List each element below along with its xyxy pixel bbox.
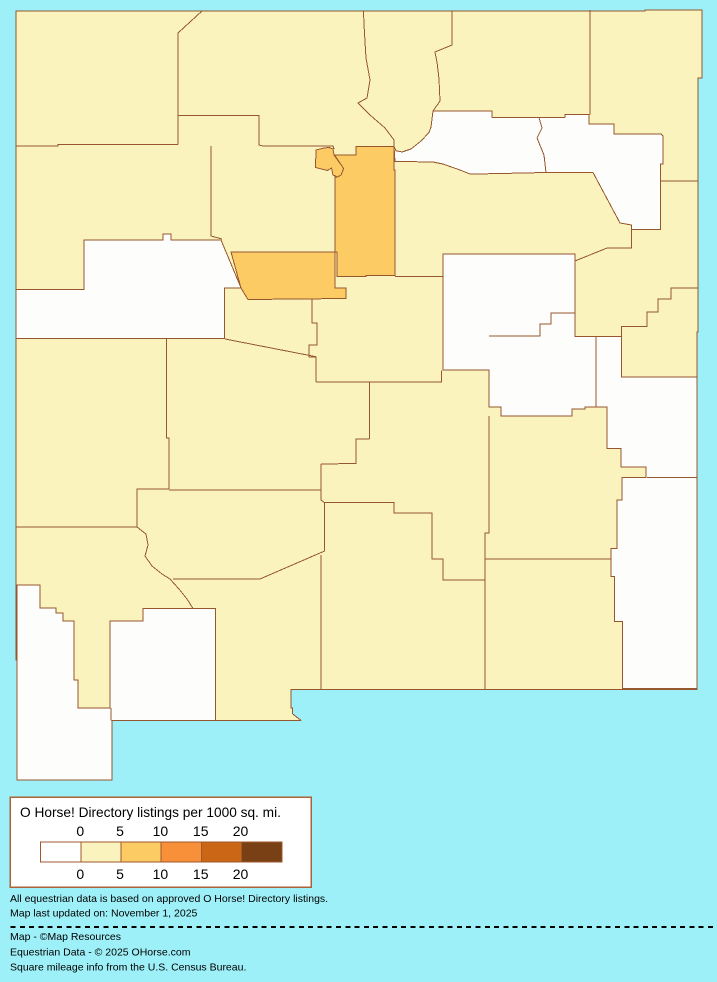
svg-text:15: 15	[193, 823, 209, 839]
svg-text:0: 0	[76, 823, 84, 839]
svg-text:5: 5	[116, 823, 124, 839]
svg-text:Map last updated on: November: Map last updated on: November 1, 2025	[10, 908, 198, 920]
svg-text:5: 5	[116, 866, 124, 882]
svg-text:20: 20	[233, 823, 249, 839]
svg-text:All equestrian data is based o: All equestrian data is based on approved…	[10, 893, 328, 905]
svg-text:10: 10	[153, 866, 169, 882]
svg-text:15: 15	[193, 866, 209, 882]
svg-text:Map - ©Map Resources: Map - ©Map Resources	[10, 931, 121, 943]
svg-text:Equestrian Data - © 2025 OHors: Equestrian Data - © 2025 OHorse.com	[10, 946, 191, 958]
svg-text:20: 20	[233, 866, 249, 882]
svg-text:10: 10	[153, 823, 169, 839]
svg-text:0: 0	[76, 866, 84, 882]
svg-text:O Horse! Directory listings pe: O Horse! Directory listings per 1000 sq.…	[20, 805, 281, 820]
svg-text:Square mileage info from the U: Square mileage info from the U.S. Census…	[10, 961, 246, 973]
